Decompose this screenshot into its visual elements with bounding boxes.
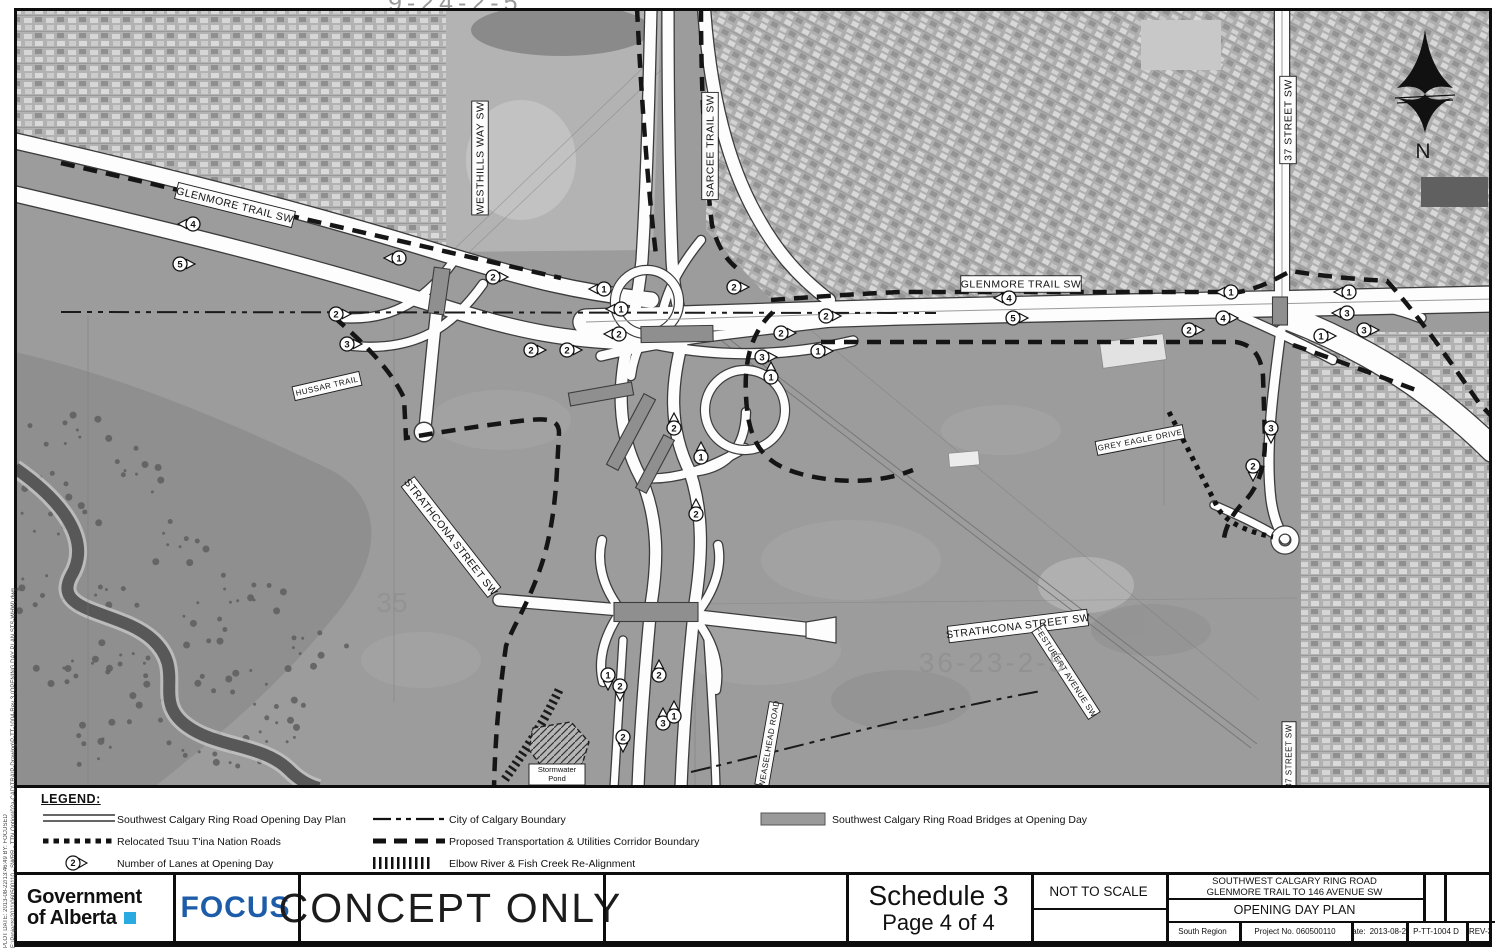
rail-hatch-symbol bbox=[369, 854, 449, 872]
tree bbox=[222, 627, 227, 632]
tree bbox=[235, 764, 240, 769]
svg-text:2: 2 bbox=[778, 328, 783, 339]
svg-text:3: 3 bbox=[344, 339, 349, 350]
revision-cell: REV-3 bbox=[1466, 921, 1495, 941]
svg-text:1: 1 bbox=[1318, 331, 1324, 342]
svg-text:2: 2 bbox=[693, 509, 698, 520]
tree bbox=[287, 717, 294, 724]
legend-label: Relocated Tsuu T'ina Nation Roads bbox=[117, 836, 281, 848]
tree bbox=[184, 536, 189, 541]
tree bbox=[179, 545, 182, 548]
tree bbox=[106, 665, 113, 672]
svg-text:5: 5 bbox=[1010, 313, 1016, 324]
tree bbox=[186, 559, 193, 566]
svg-text:3: 3 bbox=[1361, 325, 1366, 336]
svg-text:1: 1 bbox=[671, 711, 677, 722]
svg-text:4: 4 bbox=[190, 219, 196, 230]
legend-label: Proposed Transportation & Utilities Corr… bbox=[449, 836, 699, 848]
double-line-symbol bbox=[39, 810, 119, 828]
lane-marker-symbol: 2 bbox=[39, 854, 119, 872]
svg-text:2: 2 bbox=[620, 732, 625, 743]
dotted-symbol bbox=[39, 832, 119, 850]
tree bbox=[223, 588, 226, 591]
svg-text:1: 1 bbox=[698, 452, 704, 463]
tree bbox=[267, 583, 272, 588]
tree bbox=[79, 722, 86, 729]
tree bbox=[50, 471, 55, 476]
alberta-logo-square bbox=[124, 912, 136, 924]
tree bbox=[94, 416, 101, 423]
government-of-alberta-logo: Government of Alberta bbox=[17, 875, 173, 941]
svg-text:3: 3 bbox=[660, 718, 665, 729]
tree bbox=[77, 762, 82, 767]
svg-text:SARCEE TRAIL SW: SARCEE TRAIL SW bbox=[705, 95, 717, 198]
township-grid-label-w: 35 bbox=[376, 587, 407, 618]
aerial-map: GLENMORE TRAIL SWWESTHILLS WAY SWSARCEE … bbox=[17, 11, 1489, 785]
tree bbox=[76, 429, 79, 432]
tree bbox=[118, 662, 123, 667]
concept-only-text: CONCEPT ONLY bbox=[279, 885, 623, 932]
svg-text:1: 1 bbox=[815, 346, 821, 357]
tree bbox=[136, 702, 143, 709]
tree bbox=[134, 446, 139, 451]
project-number-cell: Project No. 060500110 bbox=[1239, 921, 1351, 941]
tree bbox=[33, 665, 40, 672]
tree bbox=[217, 638, 224, 645]
svg-text:4: 4 bbox=[1006, 293, 1012, 304]
tree bbox=[98, 585, 103, 590]
north-label: N bbox=[1415, 140, 1430, 163]
tree bbox=[253, 703, 256, 706]
tree bbox=[229, 601, 232, 604]
tree bbox=[97, 738, 104, 745]
tree bbox=[81, 741, 86, 746]
tree bbox=[105, 435, 112, 442]
svg-text:2: 2 bbox=[490, 272, 495, 283]
bridge bbox=[614, 603, 698, 622]
plot-date-text: PLOT DATE: 2013-08-22/13:46:49 BY: FOCUS… bbox=[3, 814, 9, 948]
dashed-symbol bbox=[369, 832, 449, 850]
tree bbox=[232, 670, 239, 677]
tree bbox=[168, 519, 173, 524]
file-path-text: E:\Projects\2011\060500110 - SWRR - TTN … bbox=[11, 588, 17, 948]
tree bbox=[132, 652, 135, 655]
svg-text:2: 2 bbox=[671, 423, 676, 434]
tree bbox=[344, 644, 349, 649]
svg-text:2: 2 bbox=[656, 670, 661, 681]
schedule-page: Page 4 of 4 bbox=[882, 911, 995, 935]
tree bbox=[285, 665, 292, 672]
tree bbox=[190, 620, 197, 627]
tree bbox=[70, 412, 77, 419]
tree bbox=[21, 578, 24, 581]
drawing-title: OPENING DAY PLAN bbox=[1234, 903, 1356, 917]
focus-logo-text: FOCUS bbox=[181, 891, 291, 925]
tree bbox=[33, 602, 38, 607]
drawing-number-cell: P-TT-1004 D bbox=[1406, 921, 1466, 941]
svg-text:2: 2 bbox=[616, 329, 621, 340]
road-label: WESTHILLS WAY SW bbox=[472, 101, 489, 215]
tree bbox=[251, 583, 256, 588]
svg-text:2: 2 bbox=[617, 681, 622, 692]
tree bbox=[318, 652, 325, 659]
tree bbox=[183, 753, 188, 758]
map-canvas: GLENMORE TRAIL SWWESTHILLS WAY SWSARCEE … bbox=[14, 8, 1492, 788]
legend-symbol bbox=[39, 810, 119, 833]
tree bbox=[212, 752, 217, 757]
tree bbox=[236, 599, 239, 602]
tree bbox=[63, 420, 68, 425]
tree bbox=[78, 436, 81, 439]
scale-note-cell: NOT TO SCALE bbox=[1031, 875, 1166, 908]
tree bbox=[45, 574, 48, 577]
svg-text:1: 1 bbox=[396, 253, 402, 264]
tree bbox=[73, 674, 78, 679]
big-roof bbox=[1421, 177, 1488, 207]
bridge bbox=[1273, 297, 1288, 325]
tree bbox=[299, 652, 302, 655]
svg-text:1: 1 bbox=[605, 670, 611, 681]
tree bbox=[274, 704, 279, 709]
tree bbox=[213, 759, 220, 766]
tree bbox=[249, 669, 252, 672]
tree bbox=[286, 740, 289, 743]
tree bbox=[92, 656, 99, 663]
tree bbox=[48, 680, 55, 687]
tree bbox=[291, 697, 298, 704]
tree bbox=[119, 654, 122, 657]
tree bbox=[157, 477, 164, 484]
tree bbox=[196, 601, 199, 604]
tree bbox=[152, 558, 159, 565]
svg-text:Pond: Pond bbox=[548, 774, 566, 783]
svg-text:Stormwater: Stormwater bbox=[538, 765, 577, 774]
tree bbox=[57, 533, 60, 536]
tree bbox=[292, 646, 295, 649]
urban-southeast bbox=[1301, 332, 1489, 785]
tree bbox=[78, 502, 85, 509]
svg-text:3: 3 bbox=[1268, 423, 1273, 434]
tree bbox=[95, 519, 102, 526]
tree bbox=[310, 663, 317, 670]
tree bbox=[65, 494, 72, 501]
tree bbox=[230, 690, 235, 695]
schedule-number: Schedule 3 bbox=[868, 881, 1008, 911]
tree bbox=[301, 637, 304, 640]
project-title-line1: SOUTHWEST CALGARY RING ROAD bbox=[1212, 876, 1377, 887]
tree bbox=[33, 530, 36, 533]
concept-only-stamp: CONCEPT ONLY bbox=[298, 875, 603, 941]
project-title-line2: GLENMORE TRAIL TO 146 AVENUE SW bbox=[1207, 887, 1383, 898]
tree bbox=[221, 573, 226, 578]
svg-text:37 STREET SW: 37 STREET SW bbox=[1283, 79, 1295, 161]
tree bbox=[317, 630, 322, 635]
tree bbox=[181, 749, 184, 752]
bridge bbox=[641, 325, 713, 342]
svg-text:1: 1 bbox=[1346, 287, 1352, 298]
project-title-cell: SOUTHWEST CALGARY RING ROAD GLENMORE TRA… bbox=[1166, 875, 1423, 898]
tree bbox=[265, 683, 268, 686]
tree bbox=[195, 539, 200, 544]
tree bbox=[143, 662, 146, 665]
tree bbox=[265, 740, 268, 743]
road-label: 37 STREET SW bbox=[1280, 76, 1297, 163]
tree bbox=[142, 461, 149, 468]
tree bbox=[166, 543, 169, 546]
tree bbox=[200, 674, 205, 679]
tree bbox=[203, 546, 210, 553]
tree bbox=[64, 481, 69, 486]
legend-symbol: 2 bbox=[39, 854, 119, 877]
svg-text:2: 2 bbox=[70, 858, 75, 868]
tree bbox=[65, 679, 70, 684]
svg-text:2: 2 bbox=[528, 345, 533, 356]
tree bbox=[82, 510, 87, 515]
legend-symbol bbox=[369, 810, 449, 833]
sheet-bottom-rule bbox=[14, 941, 1492, 947]
tree bbox=[275, 721, 278, 724]
gov-logo-line2: of Alberta bbox=[27, 908, 136, 929]
legend-symbol bbox=[757, 810, 837, 833]
legend-symbol bbox=[369, 854, 449, 877]
tree bbox=[134, 603, 139, 608]
svg-text:3: 3 bbox=[1344, 308, 1349, 319]
tree bbox=[264, 715, 269, 720]
svg-text:1: 1 bbox=[601, 284, 607, 295]
tree bbox=[293, 736, 296, 739]
tree bbox=[259, 730, 262, 733]
schedule-cell: Schedule 3 Page 4 of 4 bbox=[846, 875, 1031, 941]
svg-text:WESTHILLS WAY SW: WESTHILLS WAY SW bbox=[475, 102, 487, 215]
tree bbox=[217, 617, 222, 622]
tree bbox=[21, 512, 24, 515]
scale-note: NOT TO SCALE bbox=[1049, 884, 1147, 899]
tree bbox=[115, 459, 120, 464]
tree bbox=[94, 594, 97, 597]
tree bbox=[198, 750, 201, 753]
tree bbox=[143, 673, 148, 678]
tree bbox=[247, 594, 254, 601]
tree bbox=[280, 588, 287, 595]
svg-text:2: 2 bbox=[333, 309, 338, 320]
tree bbox=[97, 757, 100, 760]
svg-text:2: 2 bbox=[564, 345, 569, 356]
tree bbox=[206, 638, 211, 643]
legend-label: Number of Lanes at Opening Day bbox=[117, 858, 273, 870]
tree bbox=[194, 680, 201, 687]
tree bbox=[146, 656, 151, 661]
tree bbox=[155, 464, 162, 471]
region-cell: South Region bbox=[1166, 921, 1239, 941]
tree bbox=[18, 584, 25, 591]
svg-text:5: 5 bbox=[177, 259, 183, 270]
legend-title: LEGEND: bbox=[41, 792, 101, 806]
tree bbox=[40, 593, 45, 598]
dash-dot-symbol bbox=[369, 810, 449, 828]
tree bbox=[167, 740, 172, 745]
tree bbox=[108, 719, 115, 726]
tree bbox=[183, 642, 190, 649]
legend: LEGEND: Southwest Calgary Ring Road Open… bbox=[14, 788, 1492, 875]
stormwater-pond-label: StormwaterPond bbox=[529, 764, 585, 785]
tree bbox=[121, 472, 126, 477]
svg-text:3: 3 bbox=[759, 352, 764, 363]
tree bbox=[135, 473, 138, 476]
drawing-title-cell: OPENING DAY PLAN bbox=[1166, 898, 1423, 921]
legend-label: Southwest Calgary Ring Road Bridges at O… bbox=[832, 814, 1087, 826]
road-label: 37 STREET SW bbox=[1282, 722, 1296, 785]
road-label: GLENMORE TRAIL SW bbox=[961, 276, 1082, 293]
tree bbox=[28, 423, 33, 428]
tree bbox=[64, 442, 67, 445]
legend-symbol bbox=[39, 832, 119, 855]
svg-text:1: 1 bbox=[1228, 287, 1234, 298]
urban-northeast bbox=[706, 11, 1489, 300]
tree bbox=[124, 469, 127, 472]
tree bbox=[292, 635, 297, 640]
tree bbox=[129, 692, 136, 699]
tree bbox=[293, 724, 300, 731]
tree bbox=[76, 733, 81, 738]
tree bbox=[109, 746, 112, 749]
drawing-sheet: 9-24-2-5 PLOT DATE: 2013-08-22/13:46:49 … bbox=[0, 0, 1500, 951]
tree bbox=[225, 676, 232, 683]
tree bbox=[151, 490, 154, 493]
tree bbox=[91, 662, 94, 665]
tree bbox=[229, 761, 232, 764]
tree bbox=[71, 660, 74, 663]
township-grid-label-se: 36-23-2-5 bbox=[919, 647, 1067, 678]
tree bbox=[44, 442, 49, 447]
svg-text:2: 2 bbox=[1186, 325, 1191, 336]
tree bbox=[182, 615, 185, 618]
tree bbox=[127, 719, 132, 724]
tree bbox=[105, 588, 108, 591]
legend-label: Elbow River & Fish Creek Re-Alignment bbox=[449, 858, 635, 870]
svg-text:2: 2 bbox=[823, 311, 828, 322]
tree bbox=[65, 665, 72, 672]
tree bbox=[162, 532, 165, 535]
tree bbox=[273, 607, 280, 614]
svg-text:2: 2 bbox=[731, 282, 736, 293]
svg-text:GLENMORE TRAIL SW: GLENMORE TRAIL SW bbox=[961, 279, 1082, 291]
bridge-swatch-symbol bbox=[757, 810, 837, 828]
legend-label: Southwest Calgary Ring Road Opening Day … bbox=[117, 814, 346, 826]
svg-text:37 STREET SW: 37 STREET SW bbox=[1285, 724, 1294, 785]
date-cell: Date:2013-08-22 bbox=[1351, 921, 1406, 941]
legend-label: City of Calgary Boundary bbox=[449, 814, 566, 826]
tree bbox=[98, 639, 105, 646]
legend-symbol bbox=[369, 832, 449, 855]
svg-text:2: 2 bbox=[1250, 461, 1255, 472]
title-block: Government of Alberta FOCUS CONCEPT ONLY… bbox=[14, 875, 1492, 941]
tree bbox=[211, 688, 216, 693]
big-roof-2 bbox=[1141, 20, 1221, 70]
gov-logo-line1: Government bbox=[27, 887, 142, 908]
tree bbox=[143, 681, 150, 688]
tree bbox=[301, 703, 306, 708]
tree bbox=[121, 586, 126, 591]
svg-text:1: 1 bbox=[768, 372, 774, 383]
tree bbox=[158, 718, 163, 723]
svg-text:4: 4 bbox=[1220, 313, 1226, 324]
road-label: SARCEE TRAIL SW bbox=[702, 92, 719, 199]
svg-text:1: 1 bbox=[618, 304, 624, 315]
